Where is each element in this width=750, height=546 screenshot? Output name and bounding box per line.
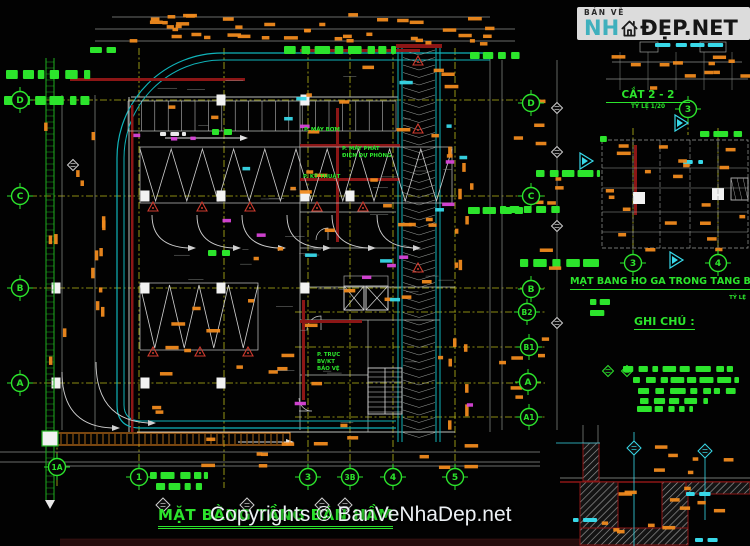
svg-text:D: D	[16, 96, 23, 106]
notes-heading: GHI CHÚ :	[634, 315, 695, 330]
drawing-layer: DCBA1A133B45DCBB2B1AA1334P. MÁY BƠMP. MÁ…	[0, 0, 750, 546]
svg-text:A1: A1	[523, 413, 534, 422]
room-label: P. KỸ THUẬT	[303, 173, 341, 180]
svg-text:C: C	[528, 192, 535, 202]
grid-bubble-3B: 3B	[337, 464, 363, 490]
pit-section-detail	[556, 425, 750, 546]
svg-text:P. KỸ THUẬT: P. KỸ THUẬT	[303, 173, 341, 180]
grid-bubble-1: 1	[126, 464, 152, 490]
svg-text:4: 4	[715, 259, 721, 269]
grid-bubble-4: 4	[380, 464, 406, 490]
svg-text:3: 3	[305, 473, 311, 483]
manhole-plan-scale: TỶ LỆ	[700, 295, 746, 301]
copyright-watermark: Copyrights © BanVeNhaDep.net	[210, 503, 512, 527]
svg-text:ĐIỆN DỰ PHÒNG: ĐIỆN DỰ PHÒNG	[342, 151, 392, 159]
svg-text:C: C	[17, 192, 24, 202]
stair	[368, 368, 402, 414]
brand-watermark: BẢN VẼ NH ĐẸP.NET	[577, 7, 750, 40]
section-scale: TỶ LỆ 1/20	[606, 104, 690, 110]
brand-name-left: NH	[584, 18, 619, 38]
svg-text:B: B	[17, 284, 24, 294]
cad-sheet: DCBA1A133B45DCBB2B1AA1334P. MÁY BƠMP. MÁ…	[0, 0, 750, 546]
grid-bubble-D: D	[7, 87, 33, 113]
grid-bubble-3: 3	[295, 464, 321, 490]
svg-text:1A: 1A	[51, 463, 62, 472]
brand-name-right: ĐẸP.NET	[640, 18, 738, 38]
site-boundary	[42, 58, 290, 509]
lane-arrows	[62, 135, 421, 445]
svg-text:1: 1	[136, 473, 142, 483]
grid-bubble-B2: B2	[514, 299, 540, 325]
dimension-lines	[0, 17, 557, 466]
svg-text:D: D	[527, 99, 534, 109]
grid-bubble-A1: A1	[516, 404, 542, 430]
grid-bubble-D: D	[518, 90, 544, 116]
room-label: P. TRỰCBV/KTBẢO VỆ	[317, 352, 340, 372]
svg-text:5: 5	[452, 473, 458, 483]
room-label: P. MÁY BƠM	[304, 126, 340, 133]
svg-text:P. MÁY BƠM: P. MÁY BƠM	[304, 126, 340, 133]
svg-text:P. TRỰC: P. TRỰC	[317, 352, 340, 358]
svg-text:3B: 3B	[345, 473, 356, 482]
svg-text:A: A	[17, 379, 24, 389]
grid-bubble-C: C	[518, 183, 544, 209]
svg-text:B: B	[528, 285, 535, 295]
grid-bubble-C: C	[7, 183, 33, 209]
ramp-chevron-hatch	[403, 50, 435, 438]
svg-text:BV/KT: BV/KT	[317, 359, 335, 365]
svg-text:B1: B1	[524, 343, 535, 352]
grid-bubble-B: B	[7, 275, 33, 301]
grid-bubble-B: B	[518, 276, 544, 302]
grid-bubble-3: 3	[620, 250, 646, 276]
grid-bubble-4: 4	[705, 250, 731, 276]
svg-text:B2: B2	[522, 308, 533, 317]
grid-bubble-A: A	[515, 369, 541, 395]
note-text-blocks	[4, 43, 742, 542]
svg-text:3: 3	[630, 259, 636, 269]
house-icon	[620, 19, 639, 38]
svg-text:BẢO VỆ: BẢO VỆ	[317, 364, 340, 372]
svg-text:4: 4	[390, 473, 396, 483]
columns	[52, 95, 725, 389]
section-title: CẮT 2 - 2	[606, 89, 690, 103]
elevator-core	[344, 276, 388, 310]
grid-bubble-A: A	[7, 370, 33, 396]
svg-text:P. MÁY PHÁT: P. MÁY PHÁT	[342, 145, 380, 152]
svg-text:A: A	[525, 378, 532, 388]
manhole-plan-title: MẶT BẰNG HỐ GA TRONG TẦNG BÁN HẦM	[570, 276, 750, 290]
